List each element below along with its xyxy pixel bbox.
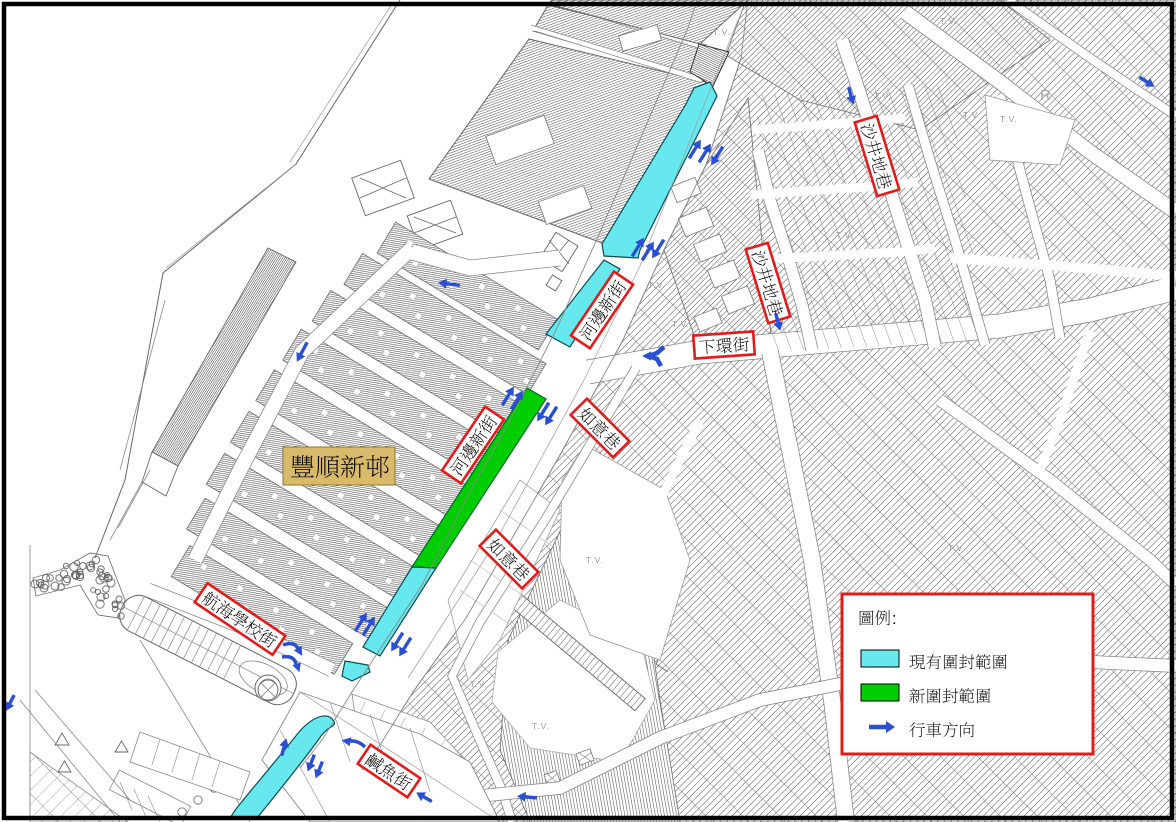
- svg-text:T.V.: T.V.: [470, 679, 488, 689]
- svg-text:T.V.: T.V.: [948, 543, 966, 553]
- svg-text:T.V.: T.V.: [963, 110, 981, 120]
- svg-text::: :: [892, 610, 897, 628]
- svg-text:T.V.: T.V.: [672, 319, 690, 329]
- svg-text:T.V.: T.V.: [713, 27, 731, 37]
- svg-text:T.V.: T.V.: [836, 230, 854, 240]
- svg-text:T.V.: T.V.: [940, 16, 958, 26]
- svg-text:T.V.: T.V.: [1000, 114, 1018, 124]
- svg-text:T.V.: T.V.: [648, 280, 666, 290]
- svg-text:R: R: [1040, 87, 1051, 104]
- svg-text:T.V.: T.V.: [874, 91, 892, 101]
- svg-text:T.V.: T.V.: [586, 555, 604, 565]
- svg-text:T.V.: T.V.: [532, 721, 550, 731]
